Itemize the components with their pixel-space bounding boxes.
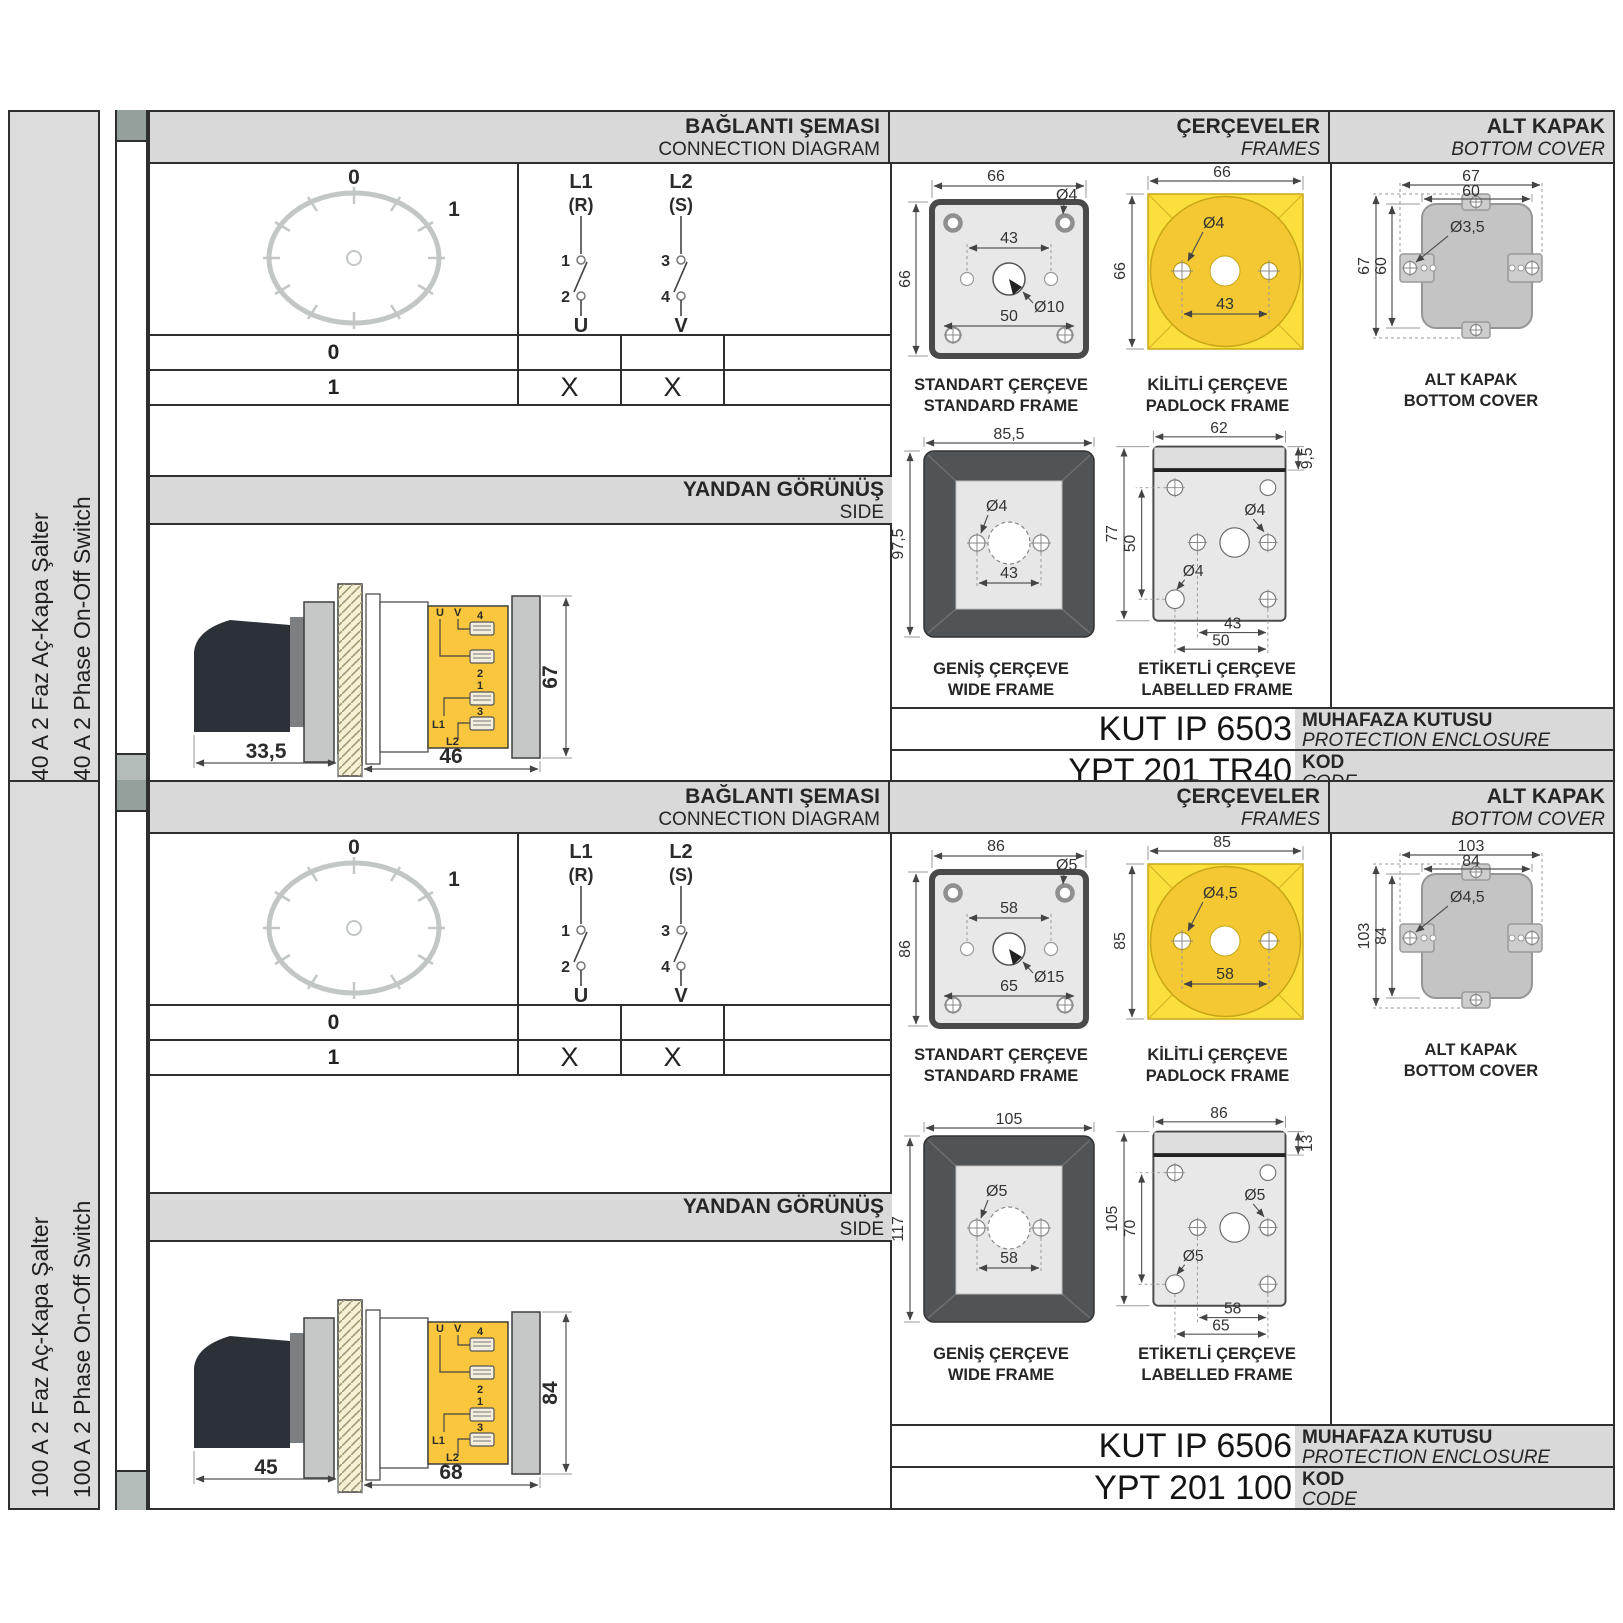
enclosure-row: KUT IP 6503 MUHAFAZA KUTUSU PROTECTION E…	[890, 707, 1613, 749]
phase-l1-label: L1	[569, 171, 592, 193]
table-row: 1 X X	[150, 1041, 892, 1076]
phase-l2-label: L2	[669, 171, 692, 193]
padlock-frame-drawing: 85 85 Ø4,5 58	[1110, 838, 1325, 1043]
dial-position-0: 0	[348, 836, 360, 859]
lab-dim-inner-h: 43	[1224, 616, 1242, 633]
phase-r-label: (R)	[569, 195, 594, 215]
std-dim-inner: 43	[1000, 230, 1018, 247]
spacer	[366, 594, 380, 764]
side-view-title-tr: YANDAN GÖRÜNÜŞ	[150, 1195, 884, 1219]
phase-l2-label: L2	[669, 841, 692, 863]
wide-frame-cell: 85,5 97,5 Ø4 43 GENİŞ ÇERÇEVE WIDE FRAME	[896, 427, 1106, 701]
table-u-cell: X	[519, 1041, 622, 1074]
enclosure-label-en: PROTECTION ENCLOSURE	[1302, 1448, 1613, 1467]
panel-content: BAĞLANTI ŞEMASI CONNECTION DIAGRAM ÇERÇE…	[148, 780, 1615, 1510]
standard-frame-drawing: 86 Ø5 86 58 Ø15 65	[896, 838, 1106, 1043]
side-view-drawing: U V 4 2 1 3 L1 L2 84 45 68	[180, 1248, 740, 1493]
contact-4-number: 4	[661, 289, 670, 306]
lab-dim-strip: 13	[1299, 1134, 1316, 1152]
labelled-frame-cell: 62 9,5 77 50 Ø4 Ø4 43 50	[1102, 427, 1332, 701]
handle-hub	[290, 1333, 304, 1443]
lab-dim-width: 62	[1210, 420, 1227, 437]
dial-position-1: 1	[448, 198, 460, 221]
contact-pole-2: L2 (S) 3 4 V	[661, 171, 693, 337]
header-bottom-cover: ALT KAPAK BOTTOM COVER	[1330, 112, 1613, 162]
labelled-frame-cell: 86 13 105 70 Ø5 Ø5 58 65	[1102, 1112, 1332, 1386]
padlock-frame-caption-tr: KİLİTLİ ÇERÇEVE	[1146, 1045, 1290, 1066]
enclosure-label-tr: MUHAFAZA KUTUSU	[1302, 709, 1613, 731]
enclosure-code: KUT IP 6506	[890, 1426, 1295, 1466]
side-dim-height: 84	[539, 1381, 562, 1405]
labelled-frame-caption-tr: ETİKETLİ ÇERÇEVE	[1138, 659, 1296, 680]
lab-dim-width: 86	[1210, 1105, 1228, 1122]
std-dim-width: 86	[987, 838, 1005, 855]
dial-position-1: 1	[448, 868, 460, 891]
pad-dim-hole: Ø4,5	[1203, 885, 1238, 902]
wide-frame-drawing: 85,5 97,5 Ø4 43	[896, 427, 1106, 657]
header-connection-en: CONNECTION DIAGRAM	[150, 139, 880, 161]
pad-dim-height: 66	[1112, 262, 1129, 280]
side-dim-body: 46	[439, 745, 462, 768]
side-terminal-u: U	[436, 1323, 444, 1335]
side-terminal-v: V	[454, 1323, 462, 1335]
standard-frame-cell: 86 Ø5 86 58 Ø15 65 STANDART ÇERÇEVE STAN…	[896, 838, 1106, 1087]
contact-pole-2: L2 (S) 3 4 V	[661, 841, 693, 1007]
padlock-frame-drawing: 66 66 Ø4 43	[1110, 168, 1325, 373]
contact-1-number: 1	[561, 923, 570, 940]
std-dim-height: 86	[897, 940, 914, 958]
product-code: YPT 201 100	[890, 1468, 1295, 1508]
std-dim-lower: 50	[1000, 308, 1018, 325]
side-view-header: YANDAN GÖRÜNÜŞ SIDE	[150, 1192, 892, 1242]
table-position-cell: 0	[150, 1006, 519, 1039]
table-position-cell: 1	[150, 1041, 519, 1074]
spacer	[366, 1310, 380, 1480]
switch-handle	[194, 1336, 290, 1448]
enclosure-label: MUHAFAZA KUTUSU PROTECTION ENCLOSURE	[1295, 1426, 1613, 1466]
table-v-cell: X	[622, 371, 725, 404]
side-dim-height: 67	[539, 665, 562, 688]
header-connection-diagram: BAĞLANTI ŞEMASI CONNECTION DIAGRAM	[150, 112, 890, 162]
header-connection-diagram: BAĞLANTI ŞEMASI CONNECTION DIAGRAM	[150, 782, 890, 832]
phase-r-label: (R)	[569, 865, 594, 885]
header-frames: ÇERÇEVELER FRAMES	[890, 782, 1330, 832]
cover-dim-h-inner: 60	[1373, 257, 1390, 275]
enclosure-row: KUT IP 6506 MUHAFAZA KUTUSU PROTECTION E…	[890, 1424, 1613, 1466]
table-v-cell: X	[622, 1041, 725, 1074]
table-u-cell	[519, 1006, 622, 1039]
lab-dim-inner-v: 50	[1122, 534, 1139, 552]
table-u-cell: X	[519, 371, 622, 404]
cover-dim-w-inner: 84	[1462, 853, 1480, 870]
contact-2-number: 2	[561, 959, 570, 976]
side-terminal-1: 1	[477, 1396, 483, 1408]
side-view-title-tr: YANDAN GÖRÜNÜŞ	[150, 478, 884, 502]
enclosure-label-en: PROTECTION ENCLOSURE	[1302, 731, 1613, 750]
header-cover-en: BOTTOM COVER	[1330, 809, 1605, 831]
padlock-frame-caption-en: PADLOCK FRAME	[1146, 1066, 1290, 1087]
side-terminal-4: 4	[477, 610, 484, 622]
side-terminal-v: V	[454, 607, 462, 619]
section-header-row: BAĞLANTI ŞEMASI CONNECTION DIAGRAM ÇERÇE…	[150, 782, 1613, 834]
side-terminal-4: 4	[477, 1326, 484, 1338]
table-u-cell	[519, 336, 622, 369]
wide-dim-height: 117	[890, 1216, 907, 1242]
mounting-panel-hatch	[338, 1300, 362, 1492]
side-terminal-3: 3	[477, 706, 483, 718]
code-rows: KUT IP 6506 MUHAFAZA KUTUSU PROTECTION E…	[890, 1424, 1613, 1508]
side-terminal-l1: L1	[432, 1435, 445, 1447]
header-cover-tr: ALT KAPAK	[1330, 115, 1605, 139]
side-dim-body: 68	[439, 1461, 463, 1484]
header-connection-en: CONNECTION DIAGRAM	[150, 809, 880, 831]
side-dim-handle: 45	[254, 1456, 278, 1479]
padlock-frame-caption-en: PADLOCK FRAME	[1146, 396, 1290, 417]
pad-dim-hole: Ø4	[1203, 215, 1224, 232]
front-housing	[380, 602, 428, 752]
rating-label-english: 100 A 2 Phase On-Off Switch	[69, 1201, 96, 1498]
lab-dim-hole2: Ø5	[1183, 1248, 1204, 1265]
wide-dim-hole: Ø4	[986, 498, 1007, 515]
table-position-cell: 1	[150, 371, 519, 404]
side-terminal-2: 2	[477, 668, 483, 680]
rating-label-strip: 100 A 2 Faz Aç-Kapa Şalter 100 A 2 Phase…	[8, 780, 100, 1510]
cover-dim-h-outer: 103	[1356, 923, 1373, 950]
front-plate	[304, 1318, 334, 1478]
header-frames-en: FRAMES	[890, 809, 1320, 831]
lab-dim-strip: 9,5	[1299, 447, 1316, 469]
std-dim-height: 66	[897, 270, 914, 288]
pad-dim-width: 85	[1213, 834, 1231, 851]
contact-2-number: 2	[561, 289, 570, 306]
code-label-tr: KOD	[1302, 1468, 1613, 1490]
front-housing	[380, 1318, 428, 1468]
padlock-frame-cell: 66 66 Ø4 43 KİLİTLİ ÇERÇEVE PADLOCK FRAM…	[1110, 168, 1325, 417]
contact-3-number: 3	[661, 923, 670, 940]
standard-frame-drawing: 66 Ø4 66 43 Ø10 50	[896, 168, 1106, 373]
cover-dim-h-inner: 84	[1373, 927, 1390, 945]
dial-position-0: 0	[348, 166, 360, 189]
contact-3-number: 3	[661, 253, 670, 270]
mounting-panel-hatch	[338, 584, 362, 776]
cover-dim-w-inner: 60	[1462, 183, 1480, 200]
lab-dim-hole1: Ø5	[1244, 1187, 1265, 1204]
lab-dim-height: 77	[1104, 525, 1121, 542]
bottom-cover-cell: 103 84 103 84 Ø4,5 ALT KAPAK BOTTOM COVE…	[1346, 838, 1596, 1082]
switching-table: 0 1 X X	[150, 334, 892, 406]
table-v-cell	[622, 1006, 725, 1039]
lab-dim-lower: 65	[1212, 1317, 1230, 1334]
bottom-cover-cell: 67 60 67 60 Ø3,5 ALT KAPAK BOTTOM COVER	[1346, 168, 1596, 412]
std-dim-center: Ø15	[1034, 969, 1064, 986]
header-frames-en: FRAMES	[890, 139, 1320, 161]
labelled-frame-caption-en: LABELLED FRAME	[1138, 680, 1296, 701]
labelled-frame-caption-tr: ETİKETLİ ÇERÇEVE	[1138, 1344, 1296, 1365]
panel-content: BAĞLANTI ŞEMASI CONNECTION DIAGRAM ÇERÇE…	[148, 110, 1615, 793]
cover-dim-hole: Ø4,5	[1450, 889, 1485, 906]
cover-dim-hole: Ø3,5	[1450, 219, 1485, 236]
rotary-dial: 0 1	[263, 166, 460, 329]
wide-frame-caption-en: WIDE FRAME	[933, 1365, 1069, 1386]
wide-dim-hole: Ø5	[986, 1183, 1007, 1200]
labelled-frame-caption-en: LABELLED FRAME	[1138, 1365, 1296, 1386]
standard-frame-caption-tr: STANDART ÇERÇEVE	[914, 1045, 1088, 1066]
std-dim-hole: Ø4	[1056, 187, 1077, 204]
enclosure-label: MUHAFAZA KUTUSU PROTECTION ENCLOSURE	[1295, 709, 1613, 749]
catalog-page: 40 A 2 Faz Aç-Kapa Şalter 40 A 2 Phase O…	[0, 0, 1623, 1623]
lab-dim-inner-v: 70	[1122, 1219, 1139, 1237]
side-view-title-en: SIDE	[150, 1219, 884, 1240]
wide-dim-inner: 43	[1000, 565, 1018, 582]
padlock-frame-cell: 85 85 Ø4,5 58 KİLİTLİ ÇERÇEVE PADLOCK FR…	[1110, 838, 1325, 1087]
wide-frame-caption-en: WIDE FRAME	[933, 680, 1069, 701]
table-row: 1 X X	[150, 371, 892, 406]
spine-column	[115, 110, 148, 793]
spine-top-square	[117, 780, 146, 812]
wide-dim-height: 97,5	[890, 528, 907, 559]
wide-dim-width: 85,5	[993, 426, 1024, 443]
code-label-en: CODE	[1302, 1490, 1613, 1509]
code-label-tr: KOD	[1302, 751, 1613, 773]
table-position-cell: 0	[150, 336, 519, 369]
switch-handle	[194, 620, 290, 732]
connection-diagram-drawing: 0 1 L1 (R) 1 2 U L2 (S) 3	[154, 168, 854, 334]
connection-diagram-drawing: 0 1 L1 (R) 1 2 U L2 (S) 3	[154, 838, 854, 1004]
lab-dim-lower: 50	[1212, 632, 1230, 649]
contact-pole-1: L1 (R) 1 2 U	[561, 171, 593, 337]
table-v-cell	[622, 336, 725, 369]
header-cover-tr: ALT KAPAK	[1330, 785, 1605, 809]
wide-dim-inner: 58	[1000, 1250, 1018, 1267]
side-dim-handle: 33,5	[246, 740, 287, 763]
wide-frame-caption-tr: GENİŞ ÇERÇEVE	[933, 659, 1069, 680]
rotary-dial: 0 1	[263, 836, 460, 999]
std-dim-inner: 58	[1000, 900, 1018, 917]
bottom-cover-caption-tr: ALT KAPAK	[1404, 1040, 1538, 1061]
table-row: 0	[150, 1006, 892, 1041]
side-view-drawing: U V 4 2 1 3 L1 L2 67 33,5 46	[180, 532, 740, 777]
back-plate	[512, 1312, 540, 1474]
header-connection-tr: BAĞLANTI ŞEMASI	[150, 785, 880, 809]
enclosure-label-tr: MUHAFAZA KUTUSU	[1302, 1426, 1613, 1448]
pad-dim-height: 85	[1112, 932, 1129, 950]
cover-dim-h-outer: 67	[1356, 257, 1373, 275]
back-plate	[512, 596, 540, 758]
phase-s-label: (S)	[669, 865, 693, 885]
side-terminal-l1: L1	[432, 719, 445, 731]
header-frames: ÇERÇEVELER FRAMES	[890, 112, 1330, 162]
standard-frame-caption-en: STANDARD FRAME	[914, 1066, 1088, 1087]
enclosure-code: KUT IP 6503	[890, 709, 1295, 749]
bottom-cover-caption-en: BOTTOM COVER	[1404, 391, 1538, 412]
lab-dim-hole1: Ø4	[1244, 502, 1265, 519]
pad-dim-inner: 58	[1216, 966, 1234, 983]
header-bottom-cover: ALT KAPAK BOTTOM COVER	[1330, 782, 1613, 832]
wide-frame-cell: 105 117 Ø5 58 GENİŞ ÇERÇEVE WIDE FRAME	[896, 1112, 1106, 1386]
wide-dim-width: 105	[996, 1111, 1023, 1128]
wide-frame-drawing: 105 117 Ø5 58	[896, 1112, 1106, 1342]
connection-frames-divider	[890, 832, 892, 1508]
code-rows: KUT IP 6503 MUHAFAZA KUTUSU PROTECTION E…	[890, 707, 1613, 791]
wide-frame-caption-tr: GENİŞ ÇERÇEVE	[933, 1344, 1069, 1365]
rating-label-strip: 40 A 2 Faz Aç-Kapa Şalter 40 A 2 Phase O…	[8, 110, 100, 793]
pad-dim-inner: 43	[1216, 296, 1234, 313]
product-code-row: YPT 201 100 KOD CODE	[890, 1466, 1613, 1508]
rating-label-english: 40 A 2 Phase On-Off Switch	[69, 496, 96, 781]
labelled-frame-drawing: 86 13 105 70 Ø5 Ø5 58 65	[1102, 1112, 1332, 1342]
bottom-cover-caption-en: BOTTOM COVER	[1404, 1061, 1538, 1082]
spine-bottom-square	[117, 1470, 146, 1510]
code-label: KOD CODE	[1295, 1468, 1613, 1508]
side-terminal-1: 1	[477, 680, 483, 692]
pad-dim-width: 66	[1213, 164, 1231, 181]
header-connection-tr: BAĞLANTI ŞEMASI	[150, 115, 880, 139]
handle-hub	[290, 617, 304, 727]
phase-s-label: (S)	[669, 195, 693, 215]
std-dim-lower: 65	[1000, 978, 1018, 995]
contact-4-number: 4	[661, 959, 670, 976]
std-dim-hole: Ø5	[1056, 857, 1077, 874]
product-panel: 100 A 2 Faz Aç-Kapa Şalter 100 A 2 Phase…	[8, 780, 1615, 1510]
std-dim-center: Ø10	[1034, 299, 1064, 316]
lab-dim-hole2: Ø4	[1183, 563, 1204, 580]
bottom-cover-caption-tr: ALT KAPAK	[1404, 370, 1538, 391]
section-header-row: BAĞLANTI ŞEMASI CONNECTION DIAGRAM ÇERÇE…	[150, 112, 1613, 164]
standard-frame-caption-tr: STANDART ÇERÇEVE	[914, 375, 1088, 396]
contact-1-number: 1	[561, 253, 570, 270]
spine-column	[115, 780, 148, 1510]
side-terminal-2: 2	[477, 1384, 483, 1396]
side-terminal-3: 3	[477, 1422, 483, 1434]
phase-l1-label: L1	[569, 841, 592, 863]
table-row: 0	[150, 336, 892, 371]
product-panel: 40 A 2 Faz Aç-Kapa Şalter 40 A 2 Phase O…	[8, 110, 1615, 793]
rating-label-turkish: 40 A 2 Faz Aç-Kapa Şalter	[27, 513, 54, 782]
side-view-title-en: SIDE	[150, 502, 884, 523]
bottom-cover-drawing: 103 84 103 84 Ø4,5	[1346, 838, 1596, 1038]
side-terminal-u: U	[436, 607, 444, 619]
lab-dim-height: 105	[1104, 1205, 1121, 1231]
standard-frame-caption-en: STANDARD FRAME	[914, 396, 1088, 417]
standard-frame-cell: 66 Ø4 66 43 Ø10 50 STANDART ÇERÇEVE STAN…	[896, 168, 1106, 417]
header-frames-tr: ÇERÇEVELER	[890, 785, 1320, 809]
side-view-header: YANDAN GÖRÜNÜŞ SIDE	[150, 475, 892, 525]
padlock-frame-caption-tr: KİLİTLİ ÇERÇEVE	[1146, 375, 1290, 396]
std-dim-width: 66	[987, 168, 1005, 185]
bottom-cover-drawing: 67 60 67 60 Ø3,5	[1346, 168, 1596, 368]
labelled-frame-drawing: 62 9,5 77 50 Ø4 Ø4 43 50	[1102, 427, 1332, 657]
lab-dim-inner-h: 58	[1224, 1301, 1242, 1318]
front-plate	[304, 602, 334, 762]
header-cover-en: BOTTOM COVER	[1330, 139, 1605, 161]
contact-pole-1: L1 (R) 1 2 U	[561, 841, 593, 1007]
switching-table: 0 1 X X	[150, 1004, 892, 1076]
rating-label-turkish: 100 A 2 Faz Aç-Kapa Şalter	[27, 1217, 54, 1498]
spine-top-square	[117, 110, 146, 142]
header-frames-tr: ÇERÇEVELER	[890, 115, 1320, 139]
